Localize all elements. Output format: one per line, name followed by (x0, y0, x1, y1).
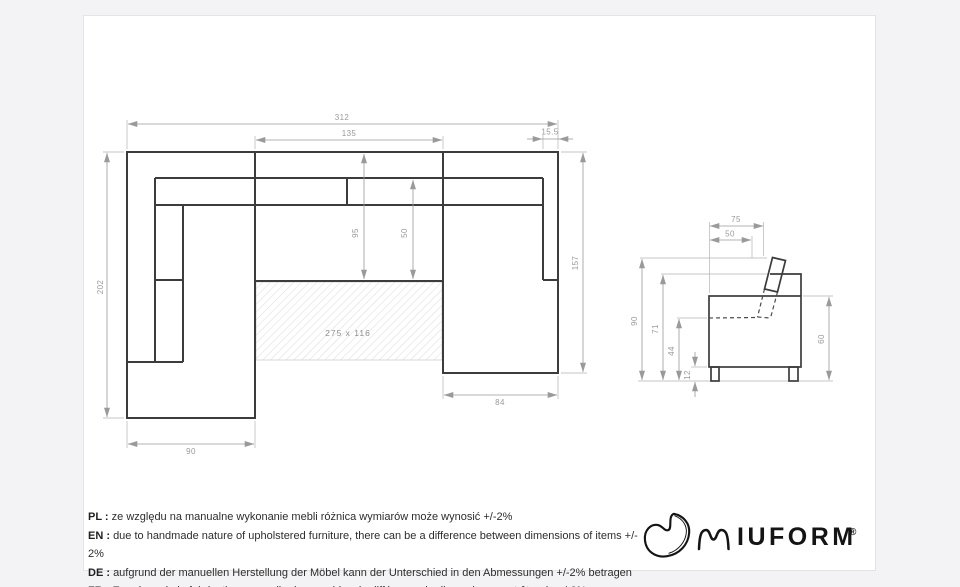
bean-logo-icon (641, 510, 695, 560)
technical-drawing: 312 135 15.5 202 90 84 157 95 50 275 x 1… (0, 0, 960, 587)
leg-back (789, 367, 798, 381)
dim-width-middle: 135 (342, 129, 357, 138)
disclaimer-text-pl: ze względu na manualne wykonanie mebli r… (112, 511, 513, 523)
leg-front (711, 367, 719, 381)
page: 312 135 15.5 202 90 84 157 95 50 275 x 1… (0, 0, 960, 587)
disclaimer-lang-en: EN : (88, 530, 110, 542)
side-view-drawing: 75 50 90 71 44 12 60 (630, 215, 833, 397)
disclaimer-line-en: EN : due to handmade nature of upholster… (88, 527, 648, 564)
disclaimer-line-fr: FR : En raison de la fabrication manuell… (88, 582, 648, 587)
disclaimer-line-pl: PL : ze względu na manualne wykonanie me… (88, 508, 648, 527)
dim-height-backrest: 71 (651, 324, 660, 334)
wave-m-icon (696, 523, 732, 551)
dim-height-seat: 44 (667, 346, 676, 356)
disclaimer-lang-de: DE : (88, 567, 110, 579)
dim-seat-depth-with-back: 95 (351, 228, 360, 238)
dim-height-armrest: 60 (817, 334, 826, 344)
dim-height-total: 90 (630, 316, 639, 326)
side-view-outline (709, 258, 801, 382)
dim-armrest-right: 15.5 (541, 128, 558, 137)
dim-depth-total: 75 (731, 215, 741, 224)
dim-depth-right: 157 (571, 256, 580, 271)
dim-chaise-right-width: 84 (495, 398, 505, 407)
registered-trademark-icon: ® (849, 527, 856, 538)
dim-width-total: 312 (335, 113, 350, 122)
dim-chaise-left-width: 90 (186, 447, 196, 456)
dim-depth-left: 202 (96, 280, 105, 295)
disclaimer-block: PL : ze względu na manualne wykonanie me… (88, 508, 648, 587)
disclaimer-text-de: aufgrund der manuellen Herstellung der M… (113, 567, 632, 579)
logo-wordmark: IUFORM (737, 523, 857, 552)
disclaimer-text-en: due to handmade nature of upholstered fu… (88, 530, 638, 561)
disclaimer-line-de: DE : aufgrund der manuellen Herstellung … (88, 564, 648, 583)
sleeping-area-hatch (256, 282, 442, 360)
sleeping-area-label: 275 x 116 (325, 328, 371, 338)
side-view-extensions (638, 222, 833, 381)
dim-seat-depth-side: 50 (725, 230, 735, 239)
dim-seat-depth: 50 (400, 228, 409, 238)
top-view-drawing: 312 135 15.5 202 90 84 157 95 50 275 x 1… (96, 113, 587, 456)
disclaimer-lang-pl: PL : (88, 511, 109, 523)
dim-height-legs: 12 (683, 370, 692, 380)
